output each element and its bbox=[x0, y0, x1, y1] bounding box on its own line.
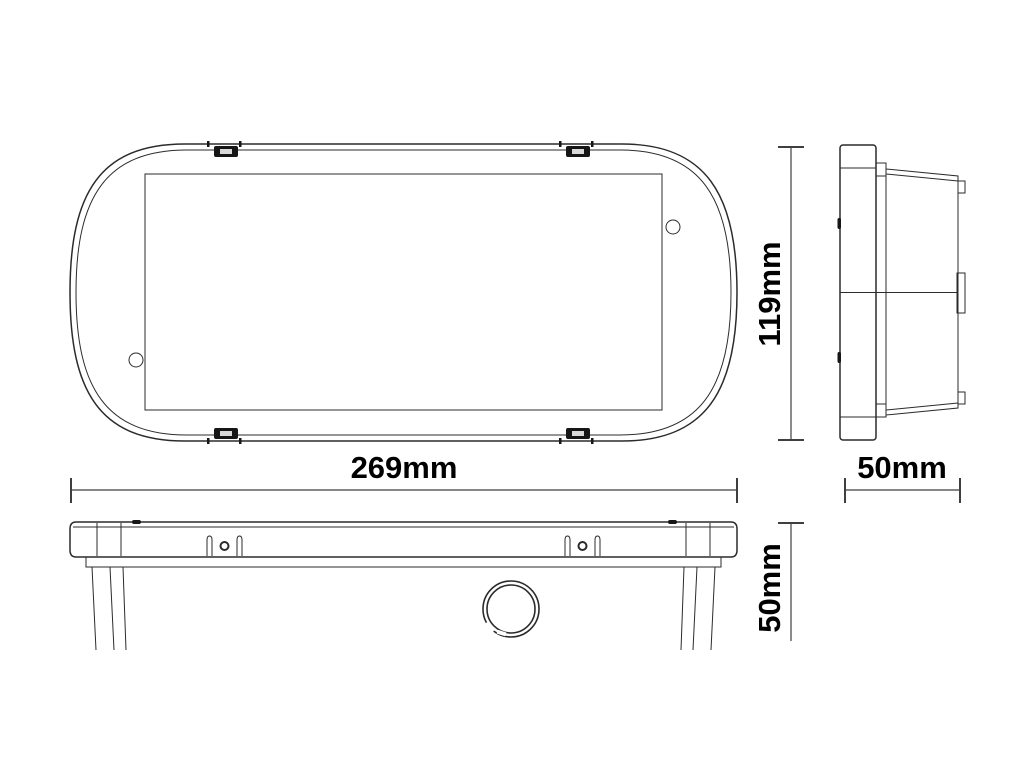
dimension-profile-height: 50mm bbox=[752, 523, 804, 641]
side-tab-top bbox=[958, 181, 965, 193]
profile-view bbox=[70, 520, 737, 650]
side-step-bottom bbox=[876, 404, 886, 417]
profile-screw-mark-left bbox=[132, 520, 141, 524]
dimension-front-height: 119mm bbox=[752, 147, 804, 440]
cable-knockout-ring bbox=[483, 581, 539, 637]
side-tab-bottom bbox=[958, 392, 965, 404]
profile-clip-slot-left bbox=[207, 536, 242, 556]
profile-endcap-lines-left bbox=[97, 523, 121, 556]
dimension-front-width-label: 269mm bbox=[351, 450, 458, 485]
front-view bbox=[70, 141, 737, 444]
screw-hole-top-right bbox=[666, 220, 680, 234]
profile-side-wall-right bbox=[681, 567, 715, 650]
technical-drawing-svg: 269mm 119mm 50mm 50mm bbox=[0, 0, 1024, 768]
side-view bbox=[838, 145, 966, 440]
dimension-side-depth-label: 50mm bbox=[857, 450, 947, 485]
dimension-profile-height-label: 50mm bbox=[752, 543, 787, 633]
drawing-canvas: 269mm 119mm 50mm 50mm bbox=[0, 0, 1024, 768]
screw-hole-bottom-left bbox=[129, 353, 143, 367]
dimension-front-width: 269mm bbox=[71, 450, 737, 503]
profile-clip-slot-right bbox=[565, 536, 600, 556]
profile-endcap-lines-right bbox=[686, 523, 710, 556]
profile-lip bbox=[86, 557, 721, 567]
side-screw-mark-top bbox=[838, 218, 842, 229]
profile-screw-mark-right bbox=[668, 520, 677, 524]
dimension-front-height-label: 119mm bbox=[752, 241, 787, 346]
dimension-side-depth: 50mm bbox=[845, 450, 960, 503]
front-outer-housing-outline bbox=[70, 144, 737, 441]
side-screw-mark-bottom bbox=[838, 352, 842, 363]
front-inner-housing-outline bbox=[76, 150, 731, 435]
side-step-top bbox=[876, 163, 886, 176]
front-lens-opening bbox=[145, 174, 662, 410]
profile-side-wall-left bbox=[92, 567, 126, 650]
